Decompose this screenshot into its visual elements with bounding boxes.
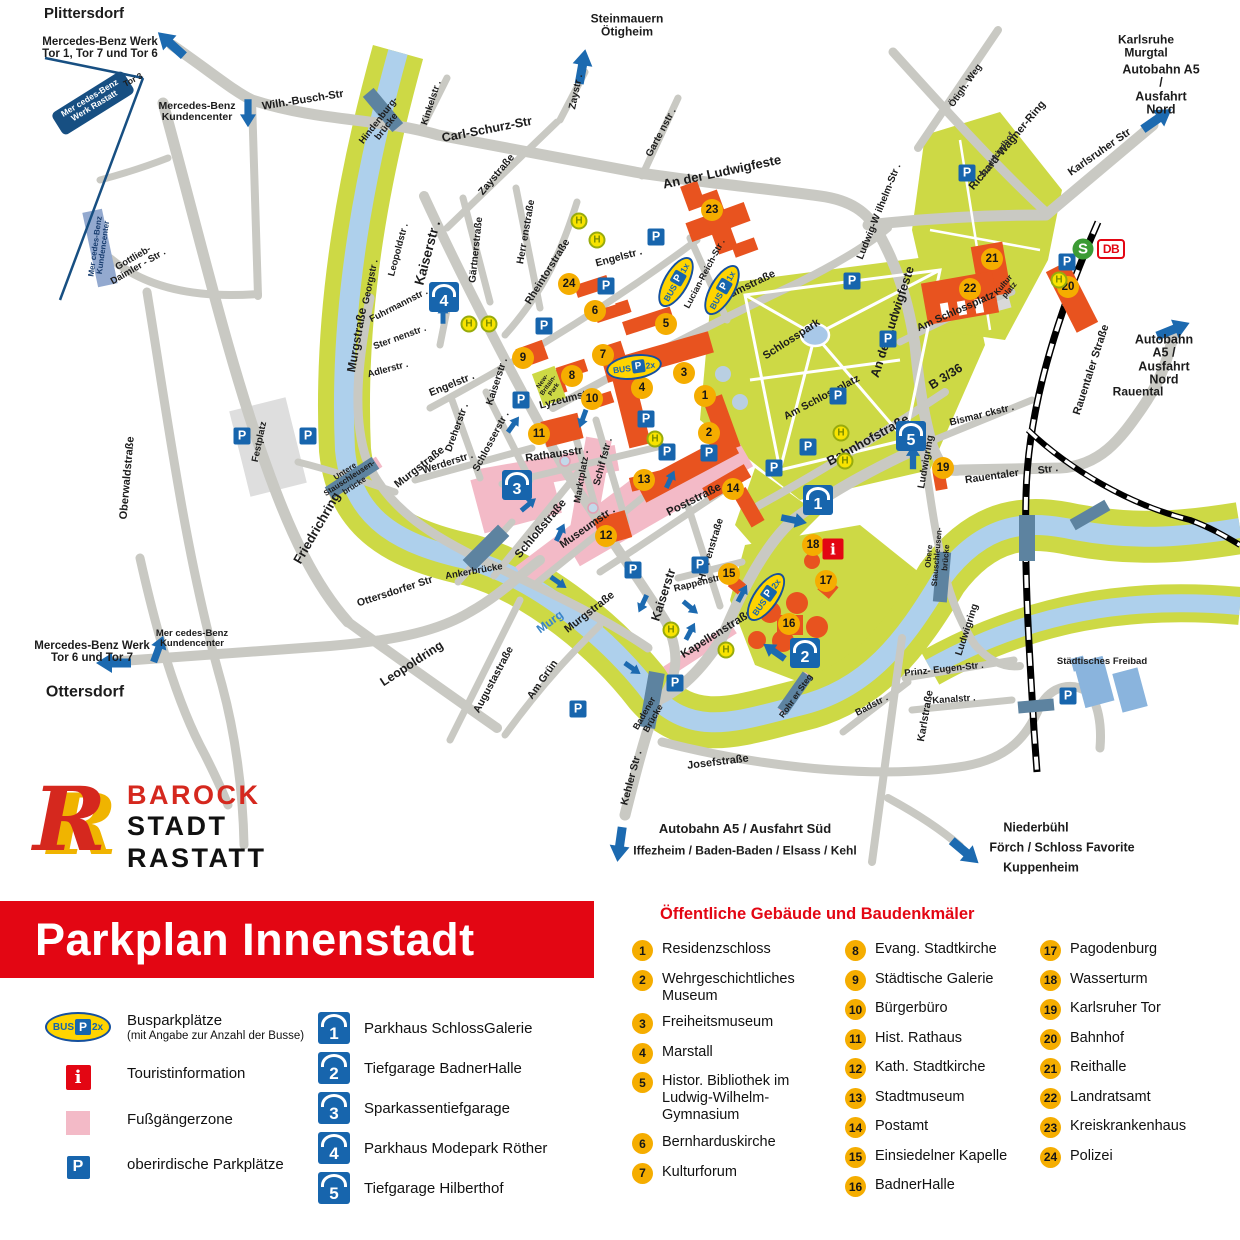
legend-building-item-12: 12Kath. Stadtkirche (845, 1058, 1035, 1079)
legend-label: Fußgängerzone (127, 1111, 233, 1129)
legend-building-item-21: 21Reithalle (1040, 1058, 1230, 1079)
route-arrow (681, 620, 700, 642)
legend-building-label: Residenzschloss (662, 940, 771, 958)
legend-icon-cell: i (45, 1065, 111, 1090)
legend-building-label: Bahnhof (1070, 1029, 1124, 1047)
legend-item-p: Poberirdische Parkplätze (45, 1156, 304, 1179)
route-arrow (569, 48, 595, 86)
legend-building-number: 16 (845, 1176, 866, 1197)
symbol-legend: BUSP2xBusparkplätze(mit Angabe zur Anzah… (45, 1012, 304, 1179)
legend-building-item-15: 15Einsiedelner Kapelle (845, 1147, 1035, 1168)
legend-building-number: 7 (632, 1163, 653, 1184)
legend-building-number: 3 (632, 1013, 653, 1034)
legend-building-item-8: 8Evang. Stadtkirche (845, 940, 1035, 961)
legend-building-item-1: 1Residenzschloss (632, 940, 832, 961)
legend-building-number: 12 (845, 1058, 866, 1079)
parkhaus-number: 3 (329, 1105, 338, 1122)
legend-building-item-18: 18Wasserturm (1040, 970, 1230, 991)
parkplan-poster: PlittersdorfMercedes-Benz Werk Tor 1, To… (0, 0, 1240, 1240)
legend-building-item-9: 9Städtische Galerie (845, 970, 1035, 991)
legend-building-number: 18 (1040, 970, 1061, 991)
rastatt-r-logo-icon: R R (33, 781, 111, 873)
legend-building-number: 17 (1040, 940, 1061, 961)
logo-line-rastatt: RASTATT (127, 843, 266, 874)
legend-building-label: Kulturforum (662, 1163, 737, 1181)
legend-building-number: 1 (632, 940, 653, 961)
bus-oval-part: 2x (92, 1022, 103, 1033)
legend-building-number: 19 (1040, 999, 1061, 1020)
legend-label: Busparkplätze(mit Angabe zur Anzahl der … (127, 1012, 304, 1044)
legend-building-label: Reithalle (1070, 1058, 1126, 1076)
legend-building-label: Postamt (875, 1117, 928, 1135)
legend-label: Touristinformation (127, 1065, 245, 1083)
legend-building-label: Wasserturm (1070, 970, 1148, 988)
parkhaus-legend-label: Tiefgarage Hilberthof (364, 1180, 504, 1197)
legend-building-item-10: 10Bürgerbüro (845, 999, 1035, 1020)
legend-building-label: Kreiskrankenhaus (1070, 1117, 1186, 1135)
legend-item-parkhaus-4: 4Parkhaus Modepark Röther (318, 1132, 547, 1164)
logo-letter-red: R (33, 775, 106, 863)
legend-building-number: 22 (1040, 1088, 1061, 1109)
bus-oval-part: P (75, 1019, 91, 1035)
parkhaus-legend-icon-5: 5 (318, 1172, 350, 1204)
legend-building-label: Bernharduskirche (662, 1133, 776, 1151)
city-map: PlittersdorfMercedes-Benz Werk Tor 1, To… (0, 0, 1240, 900)
legend-building-item-14: 14Postamt (845, 1117, 1035, 1138)
parking-legend-icon: P (67, 1156, 90, 1179)
legend-building-label: Einsiedelner Kapelle (875, 1147, 1007, 1165)
legend-building-label: Marstall (662, 1043, 713, 1061)
legend-building-number: 23 (1040, 1117, 1061, 1138)
legend-building-label: Wehrgeschichtliches Museum (662, 970, 832, 1005)
legend-building-label: Freiheitsmuseum (662, 1013, 773, 1031)
parkhaus-legend-label: Parkhaus SchlossGalerie (364, 1020, 532, 1037)
legend-building-label: Polizei (1070, 1147, 1113, 1165)
legend-building-item-11: 11Hist. Rathaus (845, 1029, 1035, 1050)
pedestrian-zone-legend-swatch (66, 1111, 90, 1135)
parkhaus-number: 1 (329, 1025, 338, 1042)
legend-building-item-24: 24Polizei (1040, 1147, 1230, 1168)
legend-item-parkhaus-5: 5Tiefgarage Hilberthof (318, 1172, 547, 1204)
legend-building-item-3: 3Freiheitsmuseum (632, 1013, 832, 1034)
legend-building-number: 24 (1040, 1147, 1061, 1168)
legend-building-label: Evang. Stadtkirche (875, 940, 997, 958)
legend-building-number: 4 (632, 1043, 653, 1064)
legend-building-number: 21 (1040, 1058, 1061, 1079)
legend-building-number: 13 (845, 1088, 866, 1109)
tourist-info-legend-icon: i (66, 1065, 91, 1090)
title-banner: Parkplan Innenstadt (0, 901, 594, 978)
legend-building-number: 10 (845, 999, 866, 1020)
legend-building-label: Pagodenburg (1070, 940, 1157, 958)
logo-line-barock: BAROCK (127, 780, 266, 811)
legend-building-item-20: 20Bahnhof (1040, 1029, 1230, 1050)
legend-item-info: iTouristinformation (45, 1065, 304, 1090)
legend-building-label: Landratsamt (1070, 1088, 1151, 1106)
barock-stadt-rastatt-logo: R R BAROCK STADT RASTATT (33, 780, 266, 874)
bus-parking-legend-icon: BUSP2x (45, 1012, 111, 1042)
legend-building-label: Städtische Galerie (875, 970, 993, 988)
buildings-legend-col-1: 1Residenzschloss2Wehrgeschichtliches Mus… (632, 940, 832, 1184)
route-arrow (680, 597, 702, 618)
parkhaus-legend-label: Parkhaus Modepark Röther (364, 1140, 547, 1157)
legend-building-number: 9 (845, 970, 866, 991)
buildings-legend-col-3: 17Pagodenburg18Wasserturm19Karlsruher To… (1040, 940, 1230, 1168)
legend-building-number: 2 (632, 970, 653, 991)
legend-building-label: Hist. Rathaus (875, 1029, 962, 1047)
legend-building-label: Kath. Stadtkirche (875, 1058, 985, 1076)
parkhaus-legend-label: Sparkassentiefgarage (364, 1100, 510, 1117)
parkhaus-legend: 1Parkhaus SchlossGalerie2Tiefgarage Badn… (318, 1012, 547, 1204)
legend-building-number: 20 (1040, 1029, 1061, 1050)
parkhaus-number: 2 (329, 1065, 338, 1082)
legend-building-label: Histor. Bibliothek im Ludwig-Wilhelm-Gym… (662, 1072, 832, 1124)
legend-item-parkhaus-3: 3Sparkassentiefgarage (318, 1092, 547, 1124)
legend-building-number: 14 (845, 1117, 866, 1138)
legend-building-number: 15 (845, 1147, 866, 1168)
legend-building-item-13: 13Stadtmuseum (845, 1088, 1035, 1109)
legend-item-parkhaus-1: 1Parkhaus SchlossGalerie (318, 1012, 547, 1044)
legend-building-item-19: 19Karlsruher Tor (1040, 999, 1230, 1020)
legend-building-item-16: 16BadnerHalle (845, 1176, 1035, 1197)
legend-building-item-2: 2Wehrgeschichtliches Museum (632, 970, 832, 1005)
parkhaus-legend-label: Tiefgarage BadnerHalle (364, 1060, 522, 1077)
legend-building-item-23: 23Kreiskrankenhaus (1040, 1117, 1230, 1138)
parkhaus-number: 4 (329, 1145, 338, 1162)
legend-label: oberirdische Parkplätze (127, 1156, 284, 1174)
page-title: Parkplan Innenstadt (35, 914, 475, 966)
legend-building-item-22: 22Landratsamt (1040, 1088, 1230, 1109)
buildings-legend-col-2: 8Evang. Stadtkirche9Städtische Galerie10… (845, 940, 1035, 1197)
parkhaus-legend-icon-4: 4 (318, 1132, 350, 1164)
legend-building-item-5: 5Histor. Bibliothek im Ludwig-Wilhelm-Gy… (632, 1072, 832, 1124)
legend-item-bus: BUSP2xBusparkplätze(mit Angabe zur Anzah… (45, 1012, 304, 1044)
legend-building-item-6: 6Bernharduskirche (632, 1133, 832, 1154)
legend-building-number: 6 (632, 1133, 653, 1154)
legend-building-label: Karlsruher Tor (1070, 999, 1161, 1017)
legend-item-parkhaus-2: 2Tiefgarage BadnerHalle (318, 1052, 547, 1084)
legend-building-label: BadnerHalle (875, 1176, 955, 1194)
parkhaus-number: 5 (329, 1185, 338, 1202)
legend-building-item-7: 7Kulturforum (632, 1163, 832, 1184)
legend-icon-cell: P (45, 1156, 111, 1179)
legend-building-item-17: 17Pagodenburg (1040, 940, 1230, 961)
parkhaus-legend-icon-3: 3 (318, 1092, 350, 1124)
legend-icon-cell: BUSP2x (45, 1012, 111, 1042)
logo-line-stadt: STADT (127, 811, 266, 842)
parkhaus-legend-icon-2: 2 (318, 1052, 350, 1084)
legend-building-number: 8 (845, 940, 866, 961)
legend-icon-cell (45, 1111, 111, 1135)
legend-building-number: 11 (845, 1029, 866, 1050)
legend-building-number: 5 (632, 1072, 653, 1093)
map-graphics (0, 0, 1240, 900)
legend-building-item-4: 4Marstall (632, 1043, 832, 1064)
buildings-legend-title: Öffentliche Gebäude und Baudenkmäler (660, 905, 974, 924)
legend-item-ped: Fußgängerzone (45, 1111, 304, 1135)
park-areas (700, 112, 1062, 690)
route-arrow (607, 826, 632, 863)
parkhaus-legend-icon-1: 1 (318, 1012, 350, 1044)
legend-building-label: Stadtmuseum (875, 1088, 964, 1106)
bus-oval-part: BUS (53, 1022, 74, 1033)
legend-building-label: Bürgerbüro (875, 999, 948, 1017)
legend-sublabel: (mit Angabe zur Anzahl der Busse) (127, 1030, 304, 1044)
